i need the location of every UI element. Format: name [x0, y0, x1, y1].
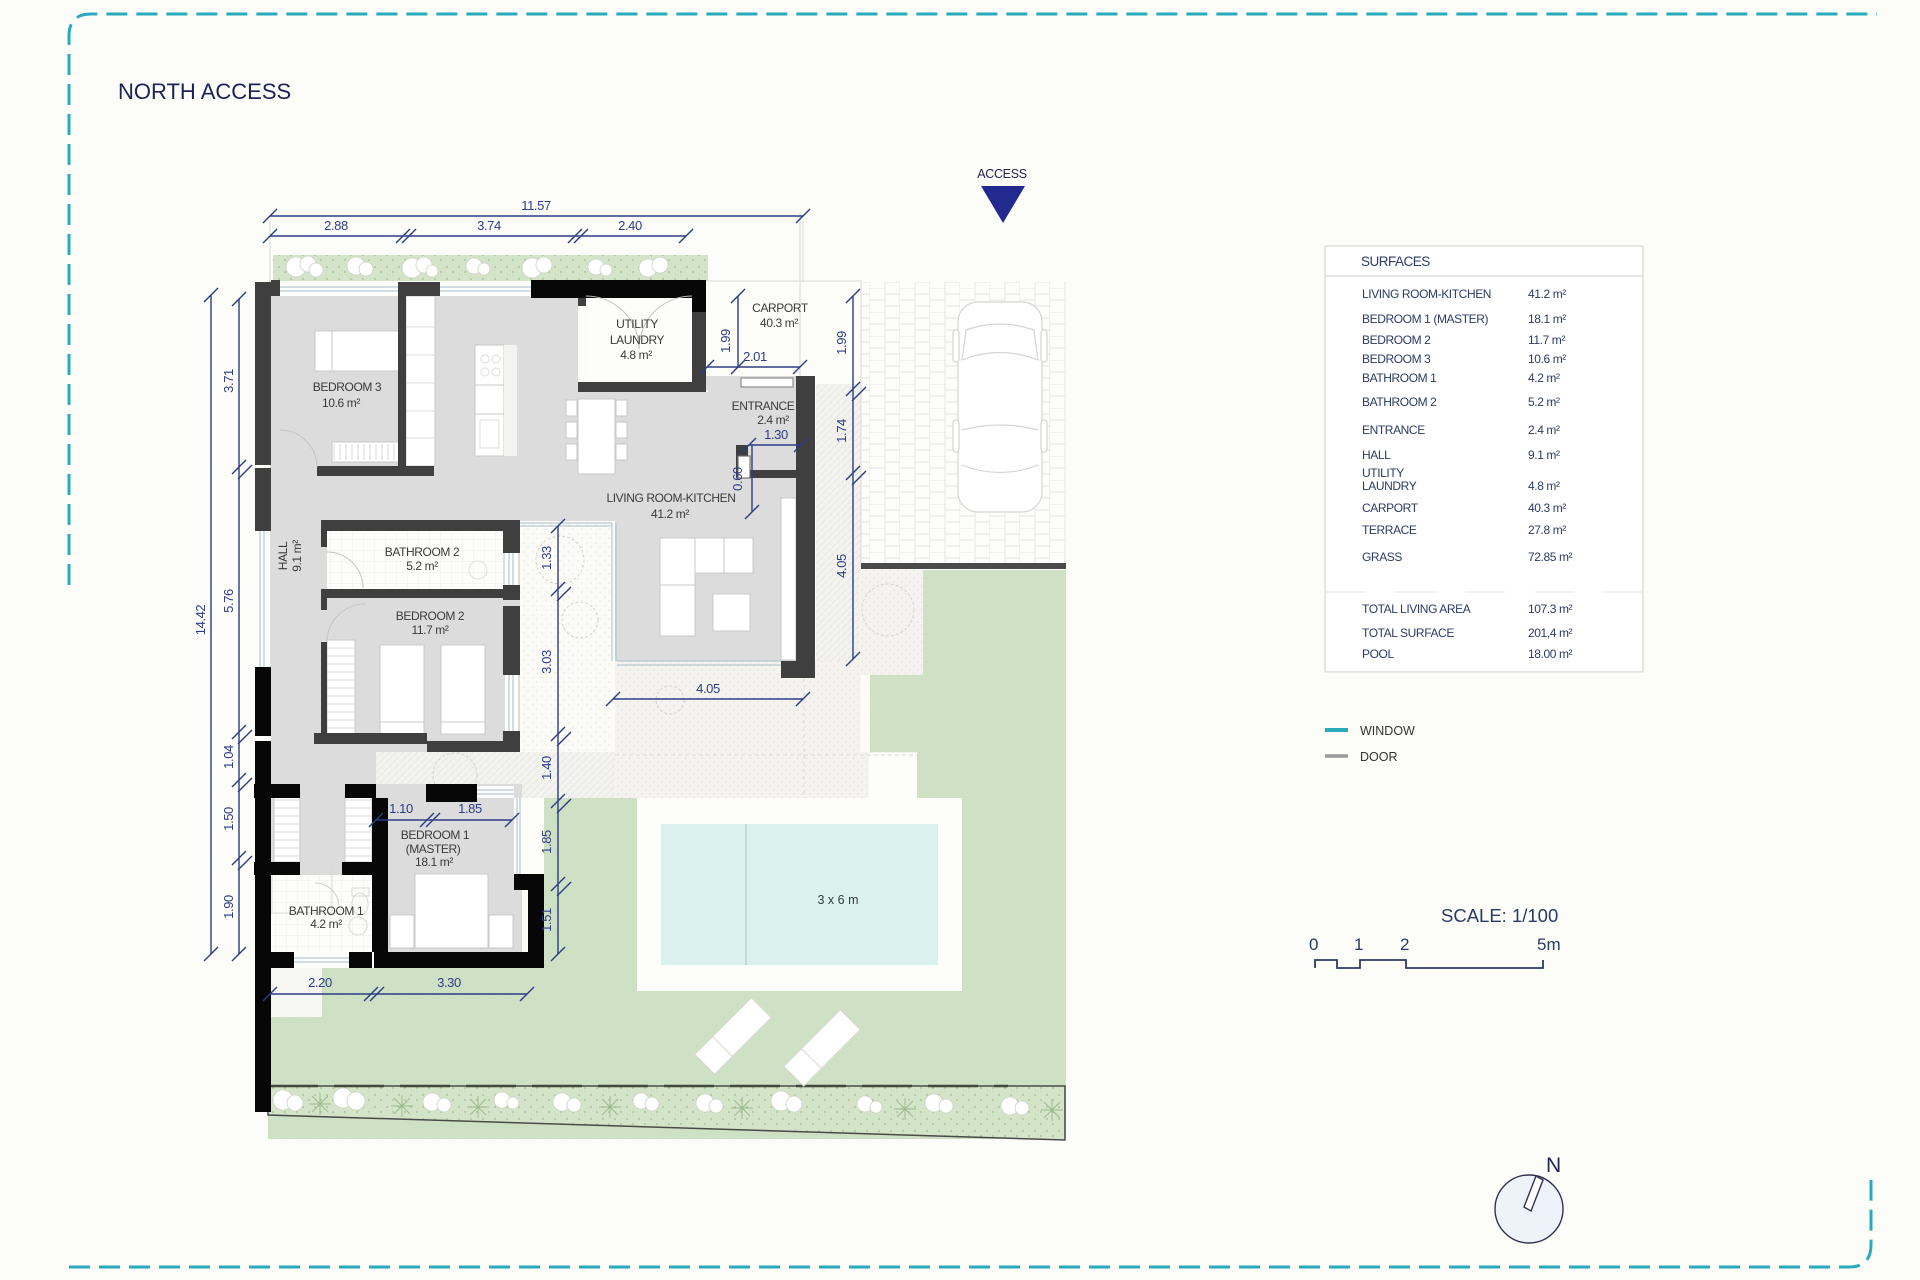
svg-text:40.3 m²: 40.3 m²	[760, 316, 798, 330]
svg-text:1.99: 1.99	[834, 331, 849, 355]
svg-text:POOL: POOL	[1362, 647, 1394, 661]
svg-text:4.8 m²: 4.8 m²	[620, 348, 652, 362]
svg-text:18.00 m²: 18.00 m²	[1528, 647, 1573, 661]
svg-text:27.8 m²: 27.8 m²	[1528, 523, 1566, 537]
svg-text:BATHROOM 1: BATHROOM 1	[289, 904, 364, 918]
svg-text:BEDROOM 3: BEDROOM 3	[1362, 352, 1431, 366]
svg-text:HALL: HALL	[1362, 448, 1391, 462]
svg-text:41.2 m²: 41.2 m²	[1528, 287, 1566, 301]
svg-text:5.2 m²: 5.2 m²	[1528, 395, 1560, 409]
svg-text:41.2 m²: 41.2 m²	[651, 507, 689, 521]
svg-text:1.33: 1.33	[539, 546, 554, 570]
svg-text:1.10: 1.10	[389, 801, 413, 816]
svg-text:1.74: 1.74	[834, 419, 849, 443]
svg-text:4.05: 4.05	[834, 554, 849, 578]
svg-text:CARPORT: CARPORT	[752, 301, 809, 315]
svg-text:107.3 m²: 107.3 m²	[1528, 602, 1573, 616]
svg-text:1: 1	[1354, 935, 1363, 954]
svg-text:1.85: 1.85	[458, 801, 482, 816]
svg-text:BATHROOM 2: BATHROOM 2	[1362, 395, 1437, 409]
svg-text:BATHROOM 1: BATHROOM 1	[1362, 371, 1437, 385]
svg-text:ACCESS: ACCESS	[977, 167, 1027, 181]
svg-text:2.4 m²: 2.4 m²	[757, 413, 789, 427]
svg-text:DOOR: DOOR	[1360, 750, 1398, 764]
svg-text:3.03: 3.03	[539, 650, 554, 674]
svg-text:201,4 m²: 201,4 m²	[1528, 626, 1573, 640]
svg-text:2.40: 2.40	[618, 218, 642, 233]
svg-text:N: N	[1546, 1154, 1561, 1177]
svg-text:UTILITY: UTILITY	[616, 317, 658, 331]
svg-text:3.71: 3.71	[221, 369, 236, 393]
svg-text:HALL: HALL	[276, 541, 290, 570]
svg-text:1.30: 1.30	[764, 427, 788, 442]
svg-text:LIVING ROOM-KITCHEN: LIVING ROOM-KITCHEN	[606, 491, 735, 505]
svg-text:1.85: 1.85	[539, 830, 554, 854]
svg-text:10.6 m²: 10.6 m²	[1528, 352, 1566, 366]
svg-text:UTILITY: UTILITY	[1362, 466, 1404, 480]
svg-text:3.74: 3.74	[477, 218, 501, 233]
svg-text:2.01: 2.01	[743, 349, 767, 364]
svg-text:0.60: 0.60	[730, 467, 745, 491]
svg-text:2.20: 2.20	[308, 975, 332, 990]
svg-text:(MASTER): (MASTER)	[406, 842, 461, 856]
svg-text:ENTRANCE: ENTRANCE	[732, 399, 795, 413]
svg-text:NORTH ACCESS: NORTH ACCESS	[118, 79, 291, 104]
svg-text:TOTAL SURFACE: TOTAL SURFACE	[1362, 626, 1454, 640]
svg-text:18.1 m²: 18.1 m²	[1528, 312, 1566, 326]
svg-text:BATHROOM 2: BATHROOM 2	[385, 545, 460, 559]
svg-text:3.30: 3.30	[437, 975, 461, 990]
svg-text:0: 0	[1309, 935, 1318, 954]
svg-text:TERRACE: TERRACE	[1362, 523, 1417, 537]
svg-text:SCALE: 1/100: SCALE: 1/100	[1441, 905, 1558, 926]
svg-text:5.2 m²: 5.2 m²	[406, 559, 438, 573]
svg-text:3 x 6 m: 3 x 6 m	[818, 893, 859, 907]
svg-text:9.1 m²: 9.1 m²	[1528, 448, 1560, 462]
svg-text:40.3 m²: 40.3 m²	[1528, 501, 1566, 515]
svg-text:11.7 m²: 11.7 m²	[1528, 333, 1565, 347]
svg-text:1.04: 1.04	[221, 745, 236, 769]
svg-text:WINDOW: WINDOW	[1360, 724, 1415, 738]
svg-text:14.42: 14.42	[193, 605, 208, 636]
svg-text:5.76: 5.76	[221, 589, 236, 613]
svg-text:72.85 m²: 72.85 m²	[1528, 550, 1573, 564]
svg-text:1.90: 1.90	[221, 895, 236, 919]
svg-text:LAUNDRY: LAUNDRY	[1362, 479, 1417, 493]
svg-text:4.05: 4.05	[696, 681, 720, 696]
svg-text:9.1 m²: 9.1 m²	[290, 540, 304, 572]
svg-text:BEDROOM 1: BEDROOM 1	[401, 828, 470, 842]
svg-text:BEDROOM 2: BEDROOM 2	[396, 609, 465, 623]
svg-text:ENTRANCE: ENTRANCE	[1362, 423, 1425, 437]
svg-text:SURFACES: SURFACES	[1361, 254, 1430, 269]
svg-text:10.6 m²: 10.6 m²	[322, 396, 360, 410]
svg-text:4.2 m²: 4.2 m²	[1528, 371, 1560, 385]
svg-text:1.99: 1.99	[718, 329, 733, 353]
svg-text:GRASS: GRASS	[1362, 550, 1402, 564]
svg-text:LAUNDRY: LAUNDRY	[610, 333, 665, 347]
svg-text:4.8 m²: 4.8 m²	[1528, 479, 1560, 493]
svg-text:2: 2	[1400, 935, 1409, 954]
svg-text:BEDROOM 3: BEDROOM 3	[313, 380, 382, 394]
svg-text:5m: 5m	[1537, 935, 1561, 954]
svg-text:BEDROOM 1 (MASTER): BEDROOM 1 (MASTER)	[1362, 312, 1489, 326]
svg-text:1.50: 1.50	[221, 807, 236, 831]
svg-text:CARPORT: CARPORT	[1362, 501, 1419, 515]
svg-text:BEDROOM 2: BEDROOM 2	[1362, 333, 1431, 347]
svg-text:2.88: 2.88	[324, 218, 348, 233]
svg-text:18.1 m²: 18.1 m²	[415, 855, 453, 869]
svg-text:2.4 m²: 2.4 m²	[1528, 423, 1560, 437]
svg-text:4.2 m²: 4.2 m²	[310, 917, 342, 931]
svg-text:LIVING ROOM-KITCHEN: LIVING ROOM-KITCHEN	[1362, 287, 1491, 301]
svg-text:11.57: 11.57	[521, 198, 551, 213]
svg-text:TOTAL LIVING AREA: TOTAL LIVING AREA	[1362, 602, 1471, 616]
svg-text:11.7 m²: 11.7 m²	[412, 623, 449, 637]
svg-text:1.51: 1.51	[539, 908, 554, 932]
svg-text:1.40: 1.40	[539, 756, 554, 780]
